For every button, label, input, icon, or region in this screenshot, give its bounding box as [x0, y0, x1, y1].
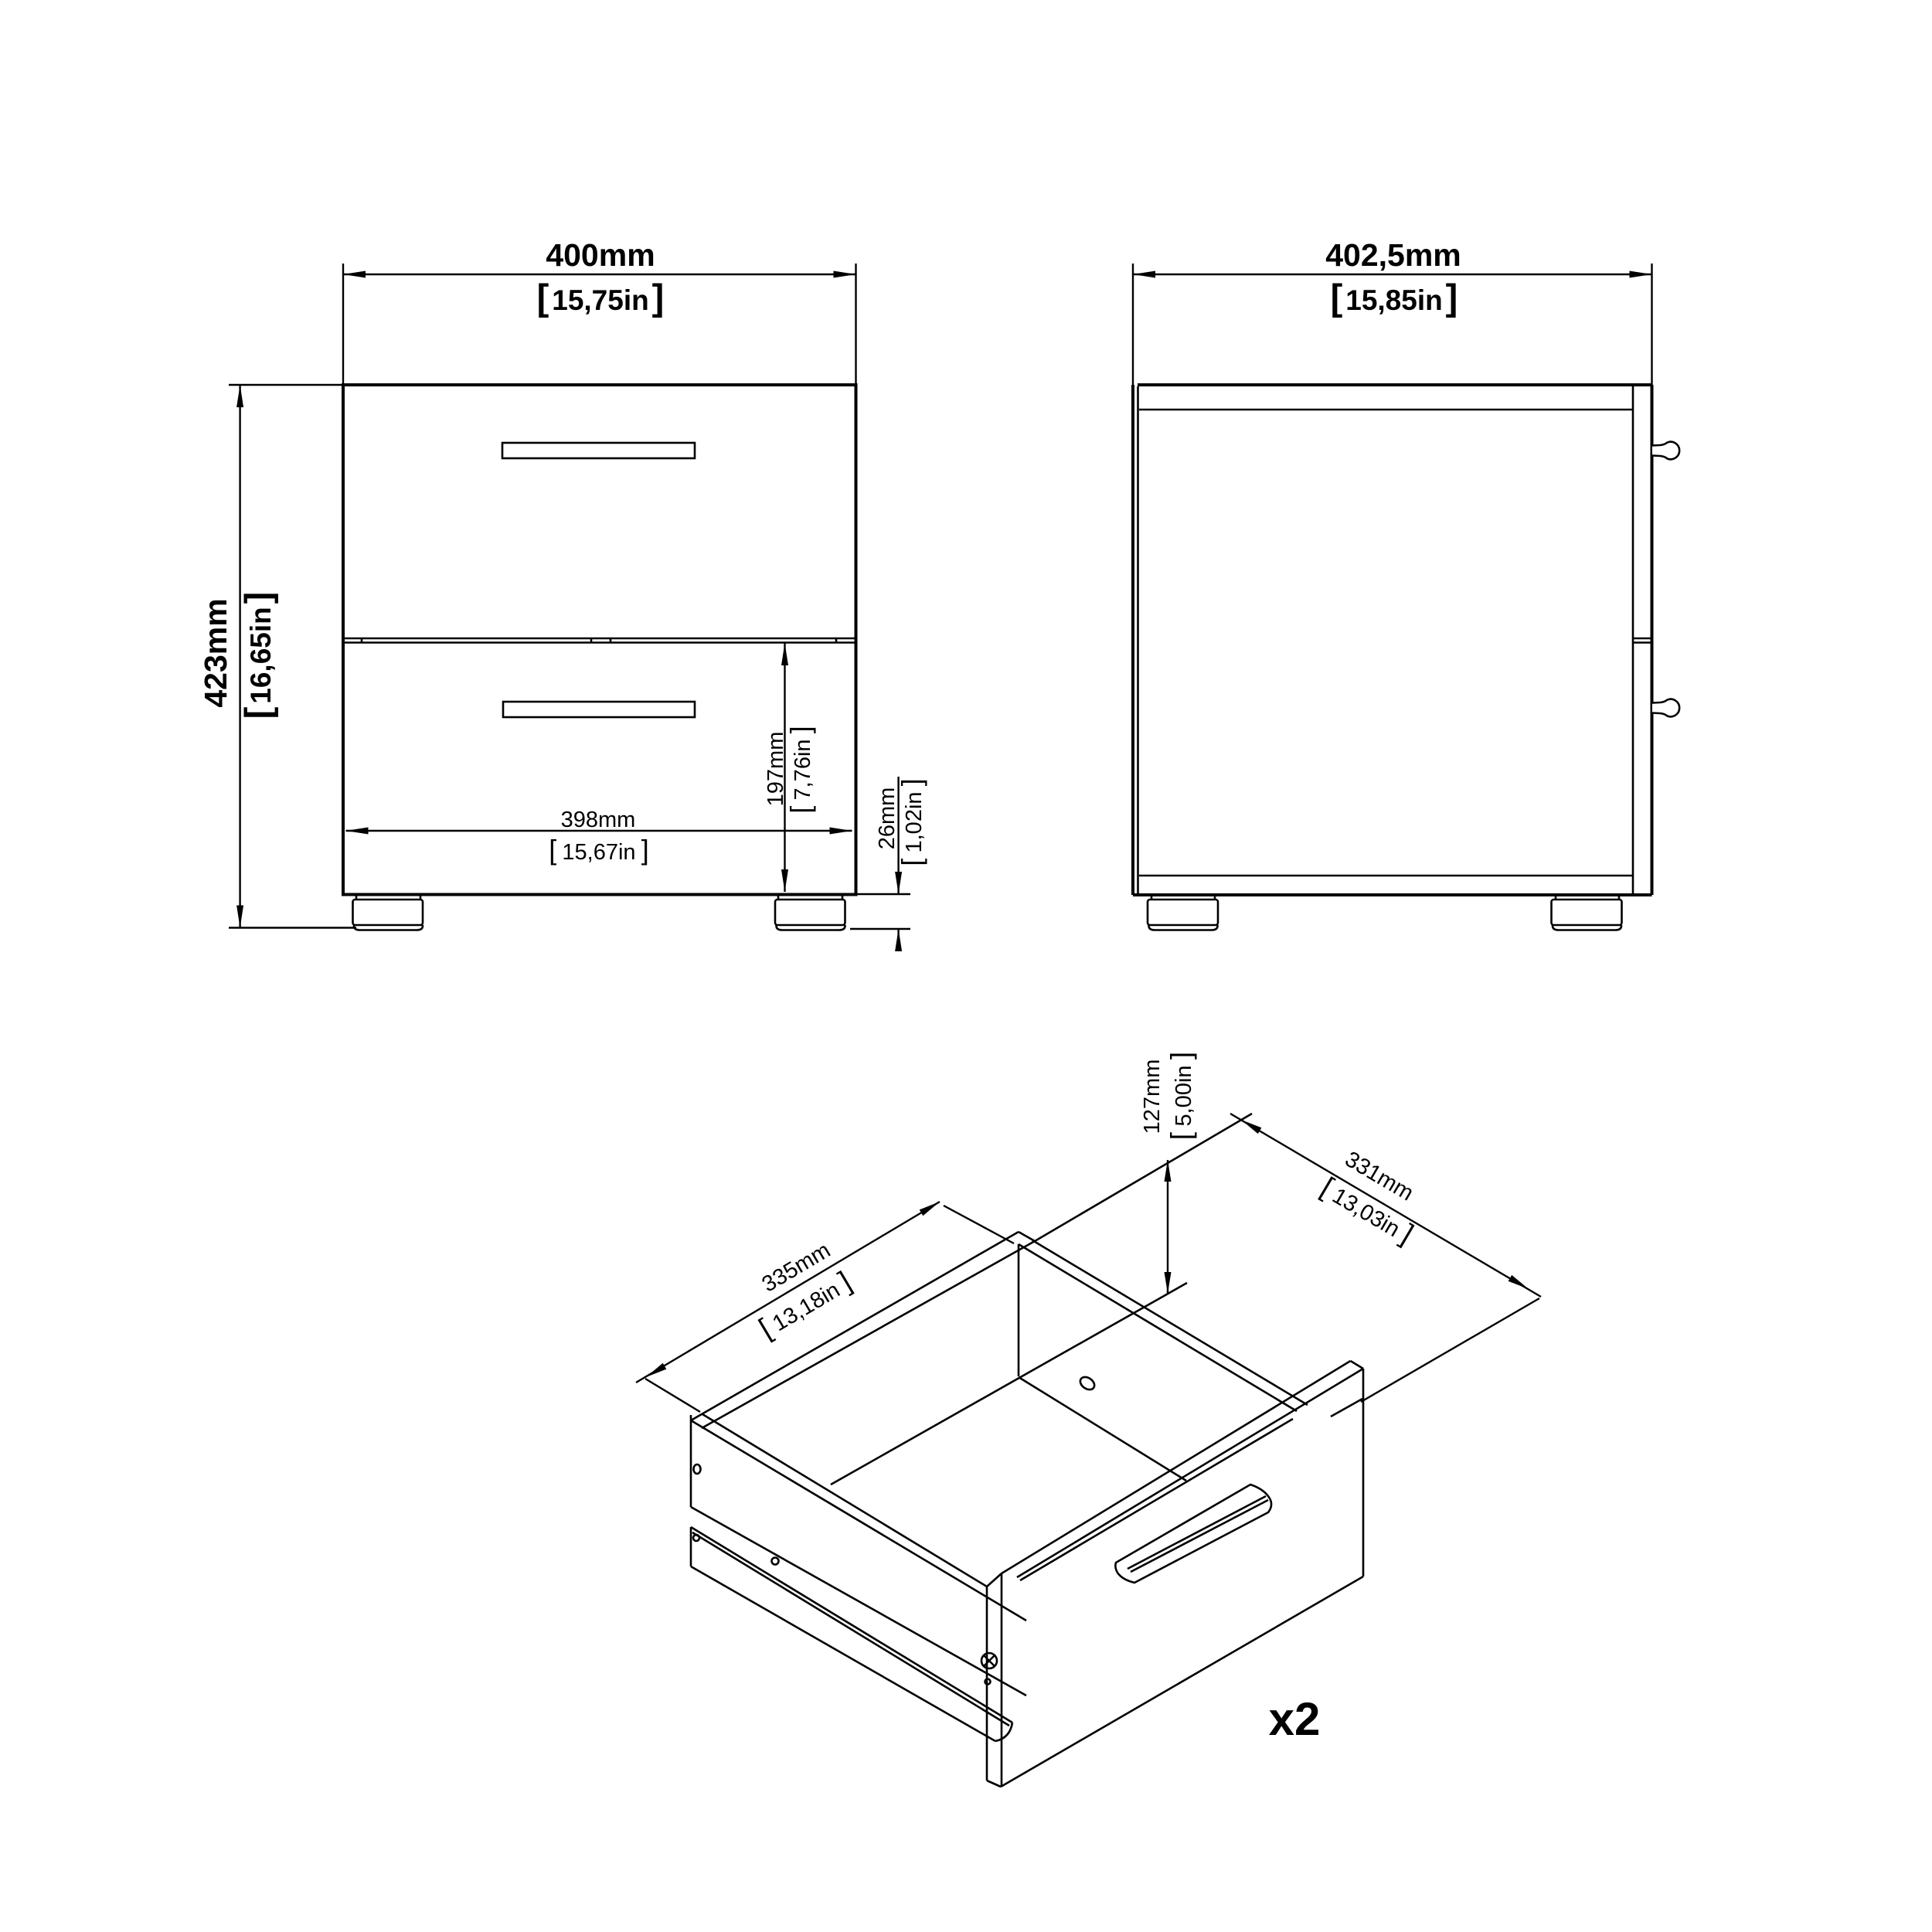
- svg-text:400mm: 400mm: [546, 237, 655, 273]
- svg-text:423mm: 423mm: [198, 598, 233, 707]
- svg-text:127mm: 127mm: [1140, 1060, 1165, 1134]
- svg-text:26mm: 26mm: [875, 787, 900, 850]
- svg-text:197mm: 197mm: [764, 732, 788, 807]
- svg-text:x2: x2: [1269, 1693, 1321, 1745]
- svg-text:398mm: 398mm: [561, 808, 636, 832]
- svg-text:402,5mm: 402,5mm: [1325, 237, 1461, 273]
